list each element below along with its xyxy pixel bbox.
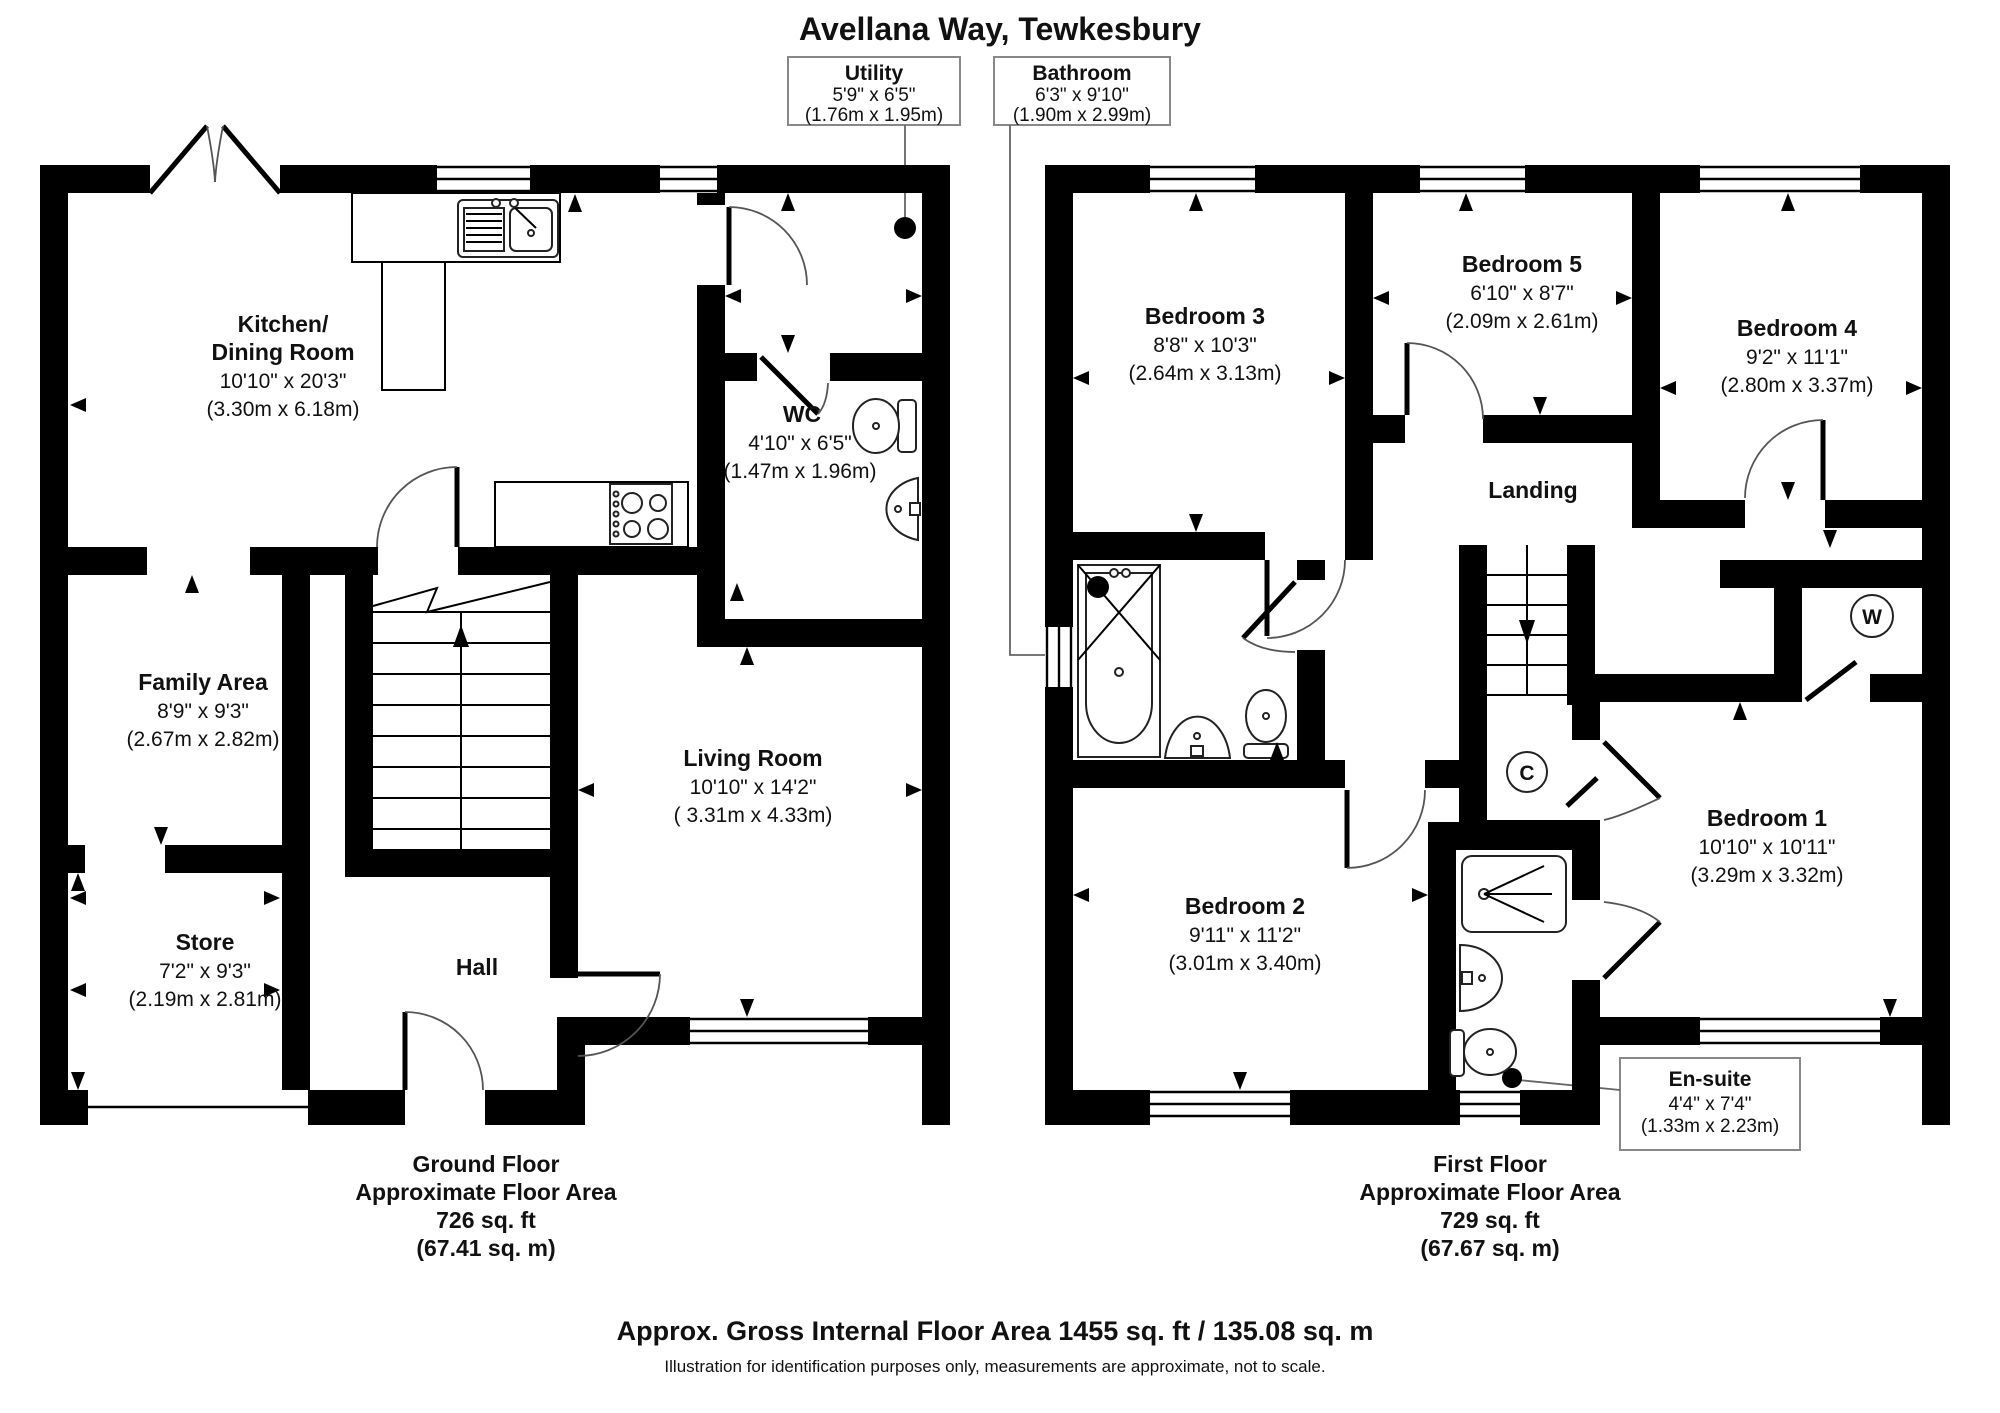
bedroom5-door-icon [1407, 343, 1483, 419]
kitchen-sink-icon [458, 199, 558, 257]
living-room-label: Living Room [683, 745, 822, 771]
bedroom1-door-icon [1604, 742, 1660, 820]
cupboard-label: C [1519, 762, 1534, 785]
bedroom2-imperial: 9'11" x 11'2" [1189, 924, 1301, 947]
window [1700, 165, 1860, 193]
bedroom4-label: Bedroom 4 [1737, 315, 1857, 341]
ff-caption-1: First Floor [1433, 1151, 1547, 1177]
bathroom-sink-icon [1165, 717, 1230, 758]
window [660, 165, 717, 193]
bedroom5-metric: (2.09m x 2.61m) [1446, 310, 1599, 333]
landing-label: Landing [1488, 477, 1577, 503]
bedroom3-metric: (2.64m x 3.13m) [1129, 362, 1282, 385]
window [1045, 627, 1073, 687]
wardrobe-circle: W [1851, 595, 1893, 637]
bedroom2-label: Bedroom 2 [1185, 893, 1305, 919]
window [690, 1017, 868, 1045]
gf-caption-4: (67.41 sq. m) [416, 1235, 555, 1261]
window [1420, 165, 1525, 193]
utility-callout-imperial: 5'9" x 6'5" [832, 85, 915, 106]
window [1460, 1090, 1520, 1118]
hall-label: Hall [456, 954, 498, 980]
hob-icon [610, 484, 672, 544]
bedroom1-imperial: 10'10" x 10'11" [1699, 836, 1836, 859]
floorplan-drawing: Avellana Way, Tewkesbury Utility 5'9" x … [0, 0, 2000, 1413]
bathroom-callout-metric: (1.90m x 2.99m) [1013, 105, 1151, 126]
french-doors-icon [150, 126, 280, 193]
wc-label: WC [783, 401, 821, 427]
ensuite-sink-icon [1460, 945, 1502, 1011]
ensuite-toilet-icon [1450, 1029, 1516, 1076]
kitchen-label: Kitchen/ [238, 311, 329, 337]
ensuite-callout-imperial: 4'4" x 7'4" [1668, 1094, 1751, 1115]
ground-floor-doors [150, 126, 828, 1090]
gf-caption-1: Ground Floor [413, 1151, 560, 1177]
floorplan-page: Avellana Way, Tewkesbury Utility 5'9" x … [0, 0, 2000, 1413]
page-title: Avellana Way, Tewkesbury [799, 11, 1201, 47]
bedroom1-label: Bedroom 1 [1707, 805, 1827, 831]
living-room-imperial: 10'10" x 14'2" [690, 776, 817, 799]
kitchen-imperial: 10'10" x 20'3" [220, 370, 347, 393]
bedroom4-imperial: 9'2" x 11'1" [1746, 346, 1848, 369]
cupboard-door-icon [1567, 778, 1597, 806]
ground-floor-labels: Kitchen/ Dining Room 10'10" x 20'3" (3.3… [127, 311, 877, 1011]
family-area-imperial: 8'9" x 9'3" [157, 700, 249, 723]
bedroom3-label: Bedroom 3 [1145, 303, 1265, 329]
bathroom-toilet-icon [1244, 690, 1288, 758]
bathroom-callout-name: Bathroom [1032, 62, 1131, 85]
utility-door-icon [729, 207, 807, 285]
bedroom2-door-icon [1347, 790, 1425, 868]
wardrobe-door-icon [1806, 662, 1856, 700]
footer: Approx. Gross Internal Floor Area 1455 s… [617, 1316, 1374, 1376]
stairs-icon [373, 582, 550, 849]
wc-toilet-icon [853, 399, 916, 453]
bedroom2-metric: (3.01m x 3.40m) [1169, 952, 1322, 975]
footer-area-summary: Approx. Gross Internal Floor Area 1455 s… [617, 1316, 1374, 1346]
utility-callout-name: Utility [845, 62, 904, 85]
living-room-metric: ( 3.31m x 4.33m) [674, 804, 833, 827]
gf-caption-2: Approximate Floor Area [355, 1179, 616, 1205]
store-label: Store [176, 929, 235, 955]
kitchen-metric: (3.30m x 6.18m) [207, 398, 360, 421]
ensuite-leader-line [1518, 1080, 1620, 1090]
bedroom5-label: Bedroom 5 [1462, 251, 1582, 277]
bathroom-callout-imperial: 6'3" x 9'10" [1035, 85, 1129, 106]
bedroom4-metric: (2.80m x 3.37m) [1721, 374, 1874, 397]
ground-floor-caption: Ground Floor Approximate Floor Area 726 … [355, 1151, 616, 1261]
stairs-up-arrow [453, 625, 469, 647]
utility-callout-metric: (1.76m x 1.95m) [805, 105, 943, 126]
footer-disclaimer: Illustration for identification purposes… [664, 1357, 1325, 1376]
stairs-down-icon [1487, 545, 1567, 695]
window [1150, 165, 1255, 193]
family-area-metric: (2.67m x 2.82m) [127, 728, 280, 751]
shower-icon [1462, 856, 1566, 932]
ensuite-callout-metric: (1.33m x 2.23m) [1641, 1116, 1779, 1137]
wc-sink-icon [886, 478, 920, 540]
ff-caption-4: (67.67 sq. m) [1420, 1235, 1559, 1261]
bathtub-icon [1078, 565, 1160, 757]
store-metric: (2.19m x 2.81m) [129, 988, 282, 1011]
window [1150, 1090, 1290, 1118]
bedroom5-imperial: 6'10" x 8'7" [1470, 282, 1574, 305]
ff-caption-3: 729 sq. ft [1440, 1207, 1540, 1233]
family-area-label: Family Area [138, 669, 268, 695]
bedroom1-ensuite-door-icon [1604, 902, 1660, 978]
ff-caption-2: Approximate Floor Area [1359, 1179, 1620, 1205]
window [1700, 1017, 1880, 1045]
window [437, 165, 530, 193]
wc-imperial: 4'10" x 6'5" [748, 432, 852, 455]
cupboard-circle: C [1507, 752, 1547, 792]
wc-metric: (1.47m x 1.96m) [724, 460, 877, 483]
gf-caption-3: 726 sq. ft [436, 1207, 536, 1233]
wardrobe-label: W [1862, 606, 1882, 629]
first-floor-caption: First Floor Approximate Floor Area 729 s… [1359, 1151, 1620, 1261]
store-imperial: 7'2" x 9'3" [159, 960, 251, 983]
bedroom1-metric: (3.29m x 3.32m) [1691, 864, 1844, 887]
front-door-icon [405, 1012, 483, 1090]
ensuite-callout-name: En-suite [1669, 1068, 1752, 1091]
kitchen-label-2: Dining Room [211, 339, 354, 365]
stairs-down-arrow [1519, 620, 1535, 644]
utility-leader-dot [894, 217, 916, 239]
bedroom3-imperial: 8'8" x 10'3" [1153, 334, 1257, 357]
bathroom-leader-line [1010, 125, 1045, 655]
kitchen-hall-door-icon [377, 467, 457, 547]
